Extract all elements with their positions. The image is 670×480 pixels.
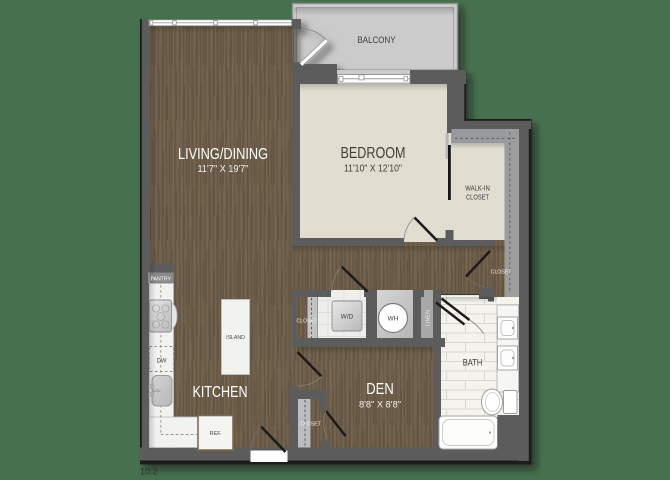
svg-text:LIVING/DINING: LIVING/DINING bbox=[178, 146, 268, 163]
svg-text:W/D: W/D bbox=[341, 314, 354, 321]
svg-text:DEN: DEN bbox=[366, 381, 394, 398]
svg-text:KITCHEN: KITCHEN bbox=[193, 384, 248, 401]
svg-text:BATH: BATH bbox=[463, 358, 483, 368]
svg-text:11'10" X 12'10": 11'10" X 12'10" bbox=[344, 164, 402, 175]
svg-text:CLOSET: CLOSET bbox=[300, 421, 321, 427]
svg-text:LINEN: LINEN bbox=[426, 310, 432, 326]
svg-text:CLOSET: CLOSET bbox=[297, 319, 318, 325]
svg-text:11'7" X 19'7": 11'7" X 19'7" bbox=[198, 164, 249, 175]
svg-text:BEDROOM: BEDROOM bbox=[341, 145, 406, 162]
svg-text:CLOSET: CLOSET bbox=[466, 195, 490, 202]
svg-text:8'8" X 8'8": 8'8" X 8'8" bbox=[359, 400, 401, 410]
svg-text:10.2: 10.2 bbox=[140, 467, 158, 477]
svg-text:PANTRY: PANTRY bbox=[150, 276, 171, 282]
svg-text:CLOSET: CLOSET bbox=[491, 270, 512, 276]
svg-text:WH: WH bbox=[388, 316, 399, 323]
svg-text:DW: DW bbox=[157, 359, 167, 365]
svg-text:WALK-IN: WALK-IN bbox=[465, 186, 490, 193]
svg-text:BALCONY: BALCONY bbox=[358, 35, 396, 46]
svg-text:REF.: REF. bbox=[209, 431, 222, 437]
svg-text:ISLAND: ISLAND bbox=[226, 335, 245, 341]
